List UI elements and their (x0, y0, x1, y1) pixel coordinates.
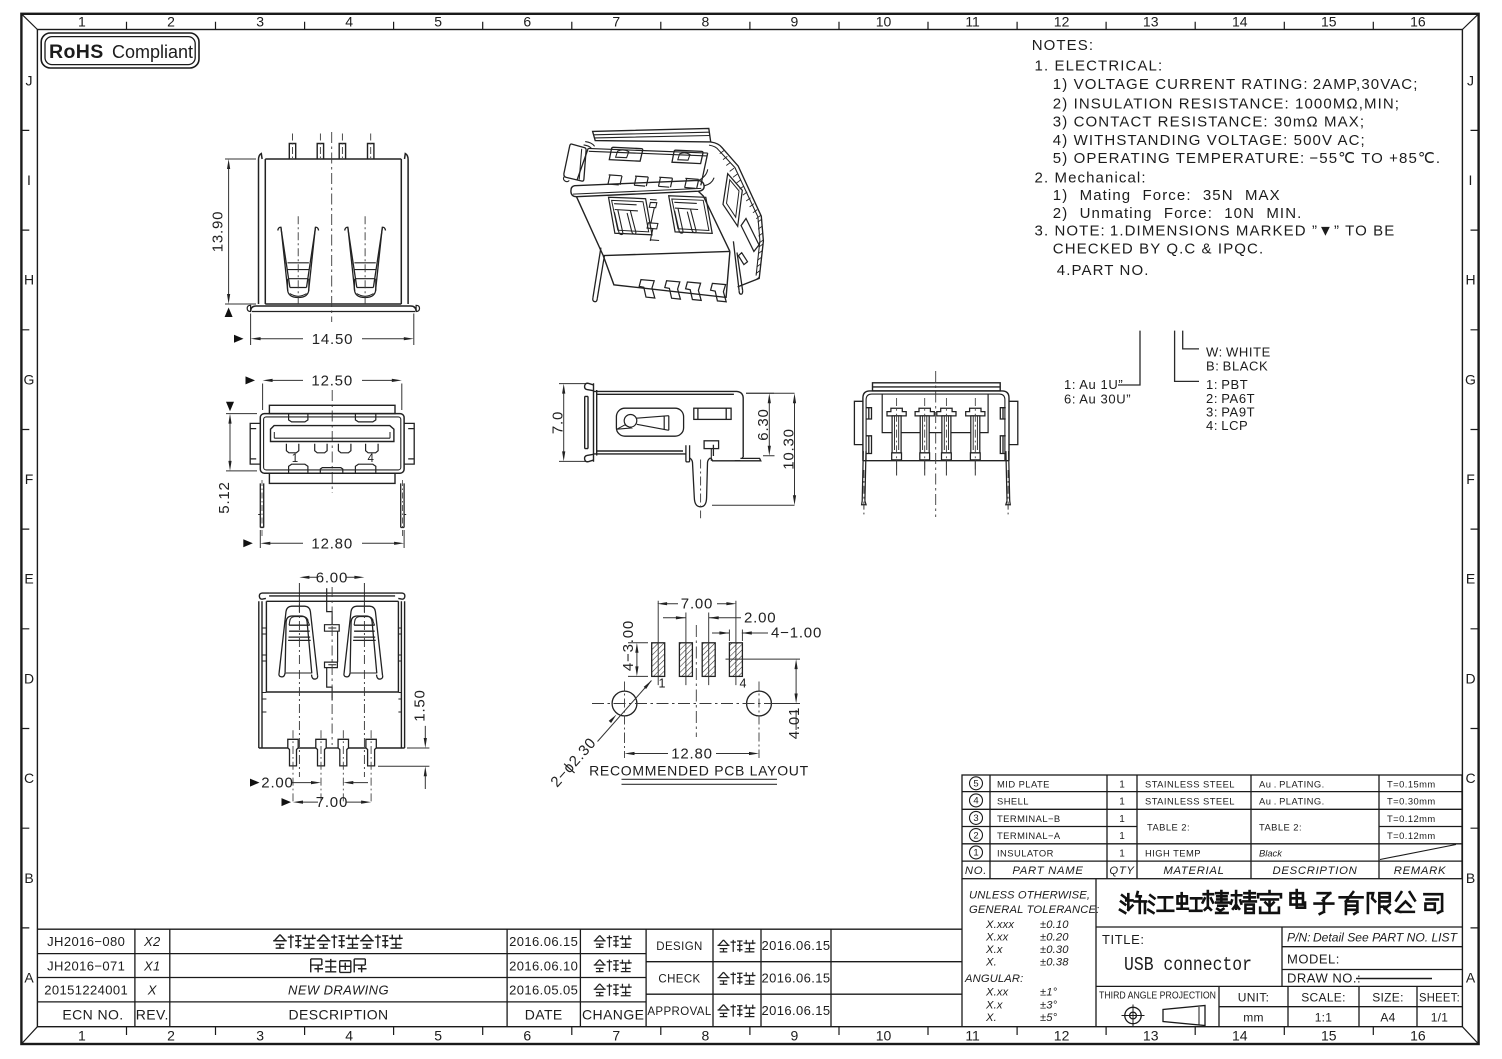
svg-text:GENERAL TOLERANCE:: GENERAL TOLERANCE: (969, 904, 1099, 916)
svg-text:H: H (24, 272, 34, 288)
svg-text:SHELL: SHELL (997, 796, 1029, 807)
svg-text:2.00: 2.00 (261, 775, 293, 792)
svg-text:I: I (27, 172, 31, 188)
svg-text:ECN NO.: ECN NO. (62, 1007, 123, 1023)
svg-text:X.xxx: X.xxx (985, 919, 1014, 931)
svg-text:13: 13 (1143, 14, 1159, 30)
svg-text:mm: mm (1243, 1011, 1264, 1025)
svg-text:B: BLACK: B: BLACK (1206, 359, 1268, 374)
svg-text:4: 4 (740, 677, 747, 691)
svg-text:7.0: 7.0 (550, 411, 567, 434)
svg-text:1: PBT: 1: PBT (1206, 377, 1248, 392)
svg-text:3) CONTACT RESISTANCE: 30mΩ: 3) CONTACT RESISTANCE: 30mΩ MAX; (1053, 114, 1365, 131)
svg-text:2016.06.15: 2016.06.15 (509, 934, 578, 949)
svg-text:2: 2 (167, 1028, 175, 1044)
svg-text:1: 1 (292, 453, 298, 465)
svg-text:X1: X1 (143, 958, 161, 973)
svg-text:12.80: 12.80 (671, 746, 713, 763)
svg-text:T=0.12mm: T=0.12mm (1387, 830, 1436, 841)
svg-text:8: 8 (702, 14, 710, 30)
svg-text:9: 9 (791, 14, 799, 30)
svg-text:6: 6 (523, 14, 531, 30)
svg-text:H: H (1465, 272, 1475, 288)
svg-text:8: 8 (702, 1028, 710, 1044)
svg-text:RECOMMENDED PCB LAYOUT: RECOMMENDED PCB LAYOUT (589, 763, 809, 779)
svg-text:1: 1 (78, 14, 86, 30)
svg-text:UNIT:: UNIT: (1238, 991, 1270, 1005)
svg-text:D: D (24, 670, 34, 686)
svg-text:J: J (26, 72, 33, 88)
svg-text:2016.06.15: 2016.06.15 (761, 1003, 830, 1018)
svg-text:2016.06.15: 2016.06.15 (761, 938, 830, 953)
svg-text:2. Mechanical:: 2. Mechanical: (1035, 170, 1147, 187)
svg-text:CHECK: CHECK (658, 973, 700, 985)
svg-text:1: 1 (973, 848, 978, 859)
svg-text:3: 3 (256, 14, 264, 30)
svg-text:±0.10: ±0.10 (1040, 919, 1069, 931)
svg-text:15: 15 (1321, 14, 1337, 30)
svg-text:2016.06.15: 2016.06.15 (761, 970, 830, 985)
svg-text:DRAW NO.:: DRAW NO.: (1287, 971, 1361, 986)
svg-text:11: 11 (965, 1028, 980, 1044)
svg-text:NEW DRAWING: NEW DRAWING (288, 983, 389, 998)
svg-text:1.50: 1.50 (412, 689, 429, 721)
svg-text:2: 2 (973, 830, 978, 841)
svg-text:CHECKED BY Q.C & IPQC.: CHECKED BY Q.C & IPQC. (1053, 240, 1264, 257)
svg-text:14.50: 14.50 (312, 331, 354, 348)
svg-text:5: 5 (434, 14, 442, 30)
svg-text:CHANGE: CHANGE (582, 1007, 644, 1023)
svg-text:T=0.12mm: T=0.12mm (1387, 813, 1436, 824)
svg-text:DATE: DATE (525, 1007, 563, 1023)
svg-text:1. ELECTRICAL:: 1. ELECTRICAL: (1035, 57, 1164, 74)
svg-text:±1°: ±1° (1040, 987, 1058, 999)
svg-text:1: 1 (1119, 797, 1125, 808)
svg-text:2: 2 (167, 14, 175, 30)
svg-text:2016.06.10: 2016.06.10 (509, 958, 578, 973)
svg-text:HIGH TEMP: HIGH TEMP (1145, 848, 1201, 859)
svg-text:±0.38: ±0.38 (1040, 957, 1069, 969)
svg-text:3: 3 (973, 813, 978, 824)
svg-text:REV.: REV. (136, 1007, 169, 1023)
svg-text:13: 13 (1143, 1028, 1159, 1044)
svg-text:4) WITHSTANDING VOLTAGE: 50: 4) WITHSTANDING VOLTAGE: 500V AC; (1053, 132, 1366, 149)
svg-text:2) INSULATION RESISTANCE: 1: 2) INSULATION RESISTANCE: 1000MΩ,MIN; (1053, 95, 1400, 112)
svg-text:3. NOTE: 1.DIMENSIONS MARKED: 3. NOTE: 1.DIMENSIONS MARKED ”▼” TO BE (1035, 223, 1396, 240)
svg-text:STAINLESS STEEL: STAINLESS STEEL (1145, 778, 1235, 789)
svg-text:20151224001: 20151224001 (44, 983, 128, 998)
svg-text:Au . PLATING.: Au . PLATING. (1259, 778, 1325, 789)
svg-text:12: 12 (1054, 1028, 1070, 1044)
svg-text:1) VOLTAGE CURRENT RATING:: 1) VOLTAGE CURRENT RATING: 2AMP,30VAC; (1053, 76, 1419, 93)
svg-text:UNLESS OTHERWISE,: UNLESS OTHERWISE, (969, 890, 1090, 902)
svg-text:MODEL:: MODEL: (1287, 952, 1340, 967)
svg-text:4: 4 (345, 14, 353, 30)
svg-text:4: 4 (368, 453, 375, 465)
svg-text:B: B (1466, 870, 1475, 886)
svg-text:A4: A4 (1380, 1011, 1395, 1025)
svg-text:1/1: 1/1 (1431, 1011, 1449, 1025)
svg-text:REMARK: REMARK (1394, 865, 1447, 877)
svg-text:4.01: 4.01 (786, 707, 803, 739)
svg-text:16: 16 (1410, 14, 1426, 30)
svg-text:5.12: 5.12 (216, 481, 233, 513)
svg-text:13.90: 13.90 (210, 211, 227, 253)
svg-text:SIZE:: SIZE: (1372, 991, 1404, 1005)
svg-text:2016.05.05: 2016.05.05 (509, 983, 578, 998)
svg-text:D: D (1465, 670, 1475, 686)
svg-text:7.00: 7.00 (316, 794, 348, 811)
svg-text:16: 16 (1410, 1028, 1426, 1044)
svg-text:X.xx: X.xx (985, 932, 1009, 944)
svg-text:7.00: 7.00 (681, 596, 713, 613)
svg-text:4−1.00: 4−1.00 (771, 625, 822, 642)
svg-text:±5°: ±5° (1040, 1012, 1058, 1024)
svg-text:6.30: 6.30 (755, 408, 772, 440)
svg-text:B: B (24, 870, 33, 886)
svg-text:TABLE 2:: TABLE 2: (1147, 822, 1190, 833)
svg-text:12.80: 12.80 (311, 536, 353, 553)
svg-text:J: J (1467, 72, 1474, 88)
svg-text:THIRD ANGLE PROJECTION: THIRD ANGLE PROJECTION (1099, 990, 1216, 1002)
svg-text:1) Mating Force: 35N MAX: 1) Mating Force: 35N MAX (1053, 187, 1281, 204)
svg-text:Compliant: Compliant (112, 42, 193, 62)
svg-text:Au . PLATING.: Au . PLATING. (1259, 796, 1325, 807)
svg-text:A: A (1466, 970, 1476, 986)
svg-text:G: G (1465, 371, 1476, 387)
svg-text:7: 7 (612, 14, 620, 30)
svg-text:1: 1 (1119, 849, 1125, 860)
svg-text:STAINLESS STEEL: STAINLESS STEEL (1145, 796, 1235, 807)
svg-text:F: F (25, 471, 34, 487)
svg-text:DESCRIPTION: DESCRIPTION (1273, 865, 1358, 877)
svg-text:TITLE:: TITLE: (1102, 932, 1145, 947)
svg-text:SCALE:: SCALE: (1301, 991, 1346, 1005)
svg-text:G: G (24, 371, 35, 387)
svg-text:INSULATOR: INSULATOR (997, 848, 1054, 859)
svg-text:X: X (147, 983, 158, 998)
svg-text:1: 1 (1119, 814, 1125, 825)
svg-text:5) OPERATING TEMPERATURE: −5: 5) OPERATING TEMPERATURE: −55℃ TO +85℃. (1053, 150, 1441, 167)
svg-text:DESIGN: DESIGN (656, 941, 703, 953)
svg-text:APPROVAL: APPROVAL (647, 1006, 712, 1018)
svg-text:X.xx: X.xx (985, 987, 1009, 999)
svg-text:USB connector: USB connector (1124, 954, 1252, 976)
svg-text:SHEET:: SHEET: (1419, 991, 1460, 1005)
svg-text:11: 11 (965, 14, 980, 30)
svg-text:X.: X. (985, 957, 997, 969)
svg-text:NOTES:: NOTES: (1032, 37, 1094, 54)
svg-text:TABLE 2:: TABLE 2: (1259, 822, 1302, 833)
svg-text:±3°: ±3° (1040, 1000, 1058, 1012)
svg-text:6: Au 30U”: 6: Au 30U” (1064, 392, 1131, 407)
svg-text:W: WHITE: W: WHITE (1206, 345, 1271, 360)
svg-text:10: 10 (876, 14, 892, 30)
svg-text:4: 4 (345, 1028, 353, 1044)
svg-text:PART NAME: PART NAME (1012, 865, 1083, 877)
svg-text:NO.: NO. (965, 865, 987, 877)
svg-text:15: 15 (1321, 1028, 1337, 1044)
svg-text:MATERIAL: MATERIAL (1163, 865, 1224, 877)
svg-text:14: 14 (1232, 14, 1248, 30)
svg-text:1: 1 (1119, 779, 1125, 790)
svg-text:X.: X. (985, 1012, 997, 1024)
svg-text:14: 14 (1232, 1028, 1248, 1044)
svg-text:2) Unmating Force: 10N MIN: 2) Unmating Force: 10N MIN. (1053, 205, 1303, 222)
svg-text:12.50: 12.50 (311, 373, 353, 390)
svg-text:X.x: X.x (985, 944, 1003, 956)
svg-text:±0.20: ±0.20 (1040, 932, 1069, 944)
svg-text:1: 1 (1119, 831, 1125, 842)
svg-text:1: Au 1U”: 1: Au 1U” (1064, 377, 1123, 392)
svg-text:C: C (1465, 770, 1475, 786)
svg-text:T=0.30mm: T=0.30mm (1387, 796, 1436, 807)
svg-text:TERMINAL−A: TERMINAL−A (997, 830, 1061, 841)
svg-text:10.30: 10.30 (781, 428, 798, 470)
svg-text:1: 1 (78, 1028, 86, 1044)
svg-text:ANGULAR:: ANGULAR: (964, 973, 1023, 985)
svg-text:C: C (24, 770, 34, 786)
svg-text:6: 6 (523, 1028, 531, 1044)
svg-text:E: E (24, 571, 33, 587)
svg-text:4: LCP: 4: LCP (1206, 418, 1248, 433)
svg-text:4−3.00: 4−3.00 (620, 620, 637, 671)
svg-text:DESCRIPTION: DESCRIPTION (288, 1007, 388, 1023)
svg-text:9: 9 (791, 1028, 799, 1044)
svg-text:3: 3 (256, 1028, 264, 1044)
svg-text:7: 7 (612, 1028, 620, 1044)
svg-text:E: E (1466, 571, 1475, 587)
svg-text:TERMINAL−B: TERMINAL−B (997, 813, 1061, 824)
svg-text:1: 1 (659, 677, 666, 691)
svg-text:MID PLATE: MID PLATE (997, 778, 1050, 789)
svg-text:10: 10 (876, 1028, 892, 1044)
svg-text:RoHS: RoHS (49, 41, 104, 63)
svg-text:A: A (24, 970, 34, 986)
svg-text:JH2016−071: JH2016−071 (47, 958, 125, 973)
svg-text:X2: X2 (143, 934, 161, 949)
svg-text:12: 12 (1054, 14, 1070, 30)
svg-text:QTY: QTY (1109, 865, 1135, 877)
svg-text:4.PART NO.: 4.PART NO. (1057, 262, 1150, 279)
svg-text:Black: Black (1259, 848, 1283, 859)
svg-text:T=0.15mm: T=0.15mm (1387, 778, 1436, 789)
svg-text:4: 4 (973, 796, 978, 807)
svg-text:JH2016−080: JH2016−080 (47, 934, 125, 949)
svg-text:X.x: X.x (985, 1000, 1003, 1012)
svg-text:6.00: 6.00 (316, 570, 348, 587)
svg-text:1:1: 1:1 (1315, 1011, 1333, 1025)
svg-text:5: 5 (973, 779, 978, 790)
svg-text:I: I (1469, 172, 1473, 188)
svg-text:5: 5 (434, 1028, 442, 1044)
svg-text:F: F (1466, 471, 1475, 487)
svg-text:±0.30: ±0.30 (1040, 944, 1069, 956)
svg-text:P/N: Detail See PART NO. L: P/N: Detail See PART NO. LIST (1287, 931, 1458, 945)
